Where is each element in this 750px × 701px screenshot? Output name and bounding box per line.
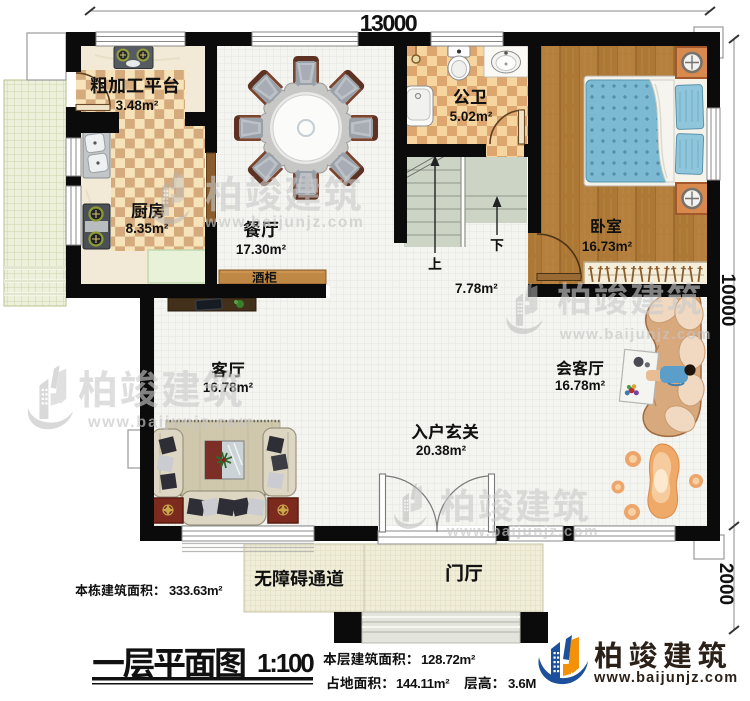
svg-text:www.baijunjz.com: www.baijunjz.com xyxy=(87,414,255,431)
svg-text:144.11m²: 144.11m² xyxy=(396,676,450,691)
svg-text:3.6M: 3.6M xyxy=(508,676,536,691)
svg-text:16.73m²: 16.73m² xyxy=(582,239,633,254)
svg-text:13000: 13000 xyxy=(360,10,417,36)
svg-text:2000: 2000 xyxy=(715,563,736,605)
svg-text:20.38m²: 20.38m² xyxy=(416,443,467,458)
svg-text:7.78m²: 7.78m² xyxy=(455,281,498,296)
svg-text:5.02m²: 5.02m² xyxy=(450,109,493,124)
svg-text:128.72m²: 128.72m² xyxy=(421,652,476,667)
svg-text:333.63m²: 333.63m² xyxy=(169,583,223,598)
svg-text:www.baijunjz.com: www.baijunjz.com xyxy=(593,670,738,686)
svg-text:17.30m²: 17.30m² xyxy=(236,242,287,257)
svg-text:www.baijunjz.com: www.baijunjz.com xyxy=(446,523,599,540)
svg-text:www.baijunjz.com: www.baijunjz.com xyxy=(204,214,364,231)
svg-text:3.48m²: 3.48m² xyxy=(116,98,159,113)
svg-text:16.78m²: 16.78m² xyxy=(555,378,606,393)
svg-text:1:100: 1:100 xyxy=(257,648,314,678)
svg-text:10000: 10000 xyxy=(717,274,738,327)
svg-text:www.baijunjz.com: www.baijunjz.com xyxy=(559,326,712,343)
